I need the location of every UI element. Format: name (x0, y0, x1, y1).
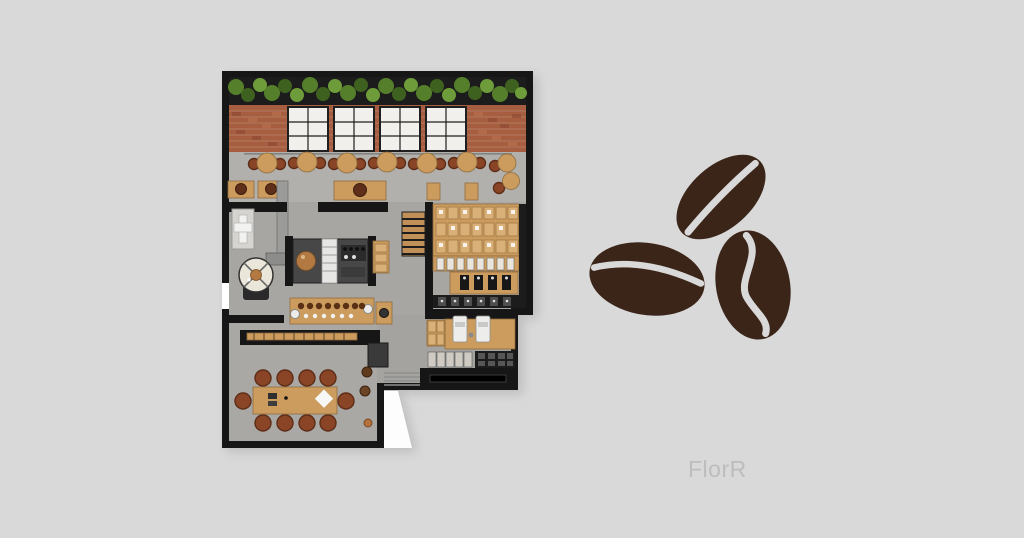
floorplan-image (222, 71, 533, 448)
lower-retail-shelf (433, 295, 519, 308)
canister-row (433, 256, 519, 271)
brew-bar (290, 298, 392, 324)
espresso-bar (285, 236, 376, 286)
framed-items-row (428, 352, 472, 367)
brand-watermark: FlorR (688, 456, 747, 483)
coffee-bean-right (707, 224, 799, 345)
counter-bag-stack (427, 320, 445, 346)
coffee-bean-left (584, 234, 710, 323)
wall-shelf-column (519, 204, 526, 308)
window (334, 107, 374, 151)
window (288, 107, 328, 151)
grinder-display-table (450, 272, 518, 294)
pos-area (425, 309, 518, 368)
poster-canvas: FlorR (0, 0, 1024, 538)
coffee-bag-row (436, 207, 518, 219)
dark-shelf-grid (475, 351, 515, 368)
coffee-beans-icon (583, 143, 799, 349)
coffee-bag-row (436, 240, 518, 253)
floorplan-svg (222, 71, 533, 448)
coffee-bag-row (436, 223, 518, 236)
brick-wall (229, 105, 526, 152)
left-door (222, 283, 229, 309)
coffee-grinder (376, 302, 392, 324)
staircase (402, 212, 425, 256)
coffee-beans-svg (583, 143, 799, 349)
entrance-door-swing (384, 391, 412, 448)
window (380, 107, 420, 151)
cash-register (476, 316, 490, 342)
pos-counter (445, 316, 515, 349)
cash-register (453, 316, 467, 342)
window (426, 107, 466, 151)
bag-bench (373, 241, 389, 273)
